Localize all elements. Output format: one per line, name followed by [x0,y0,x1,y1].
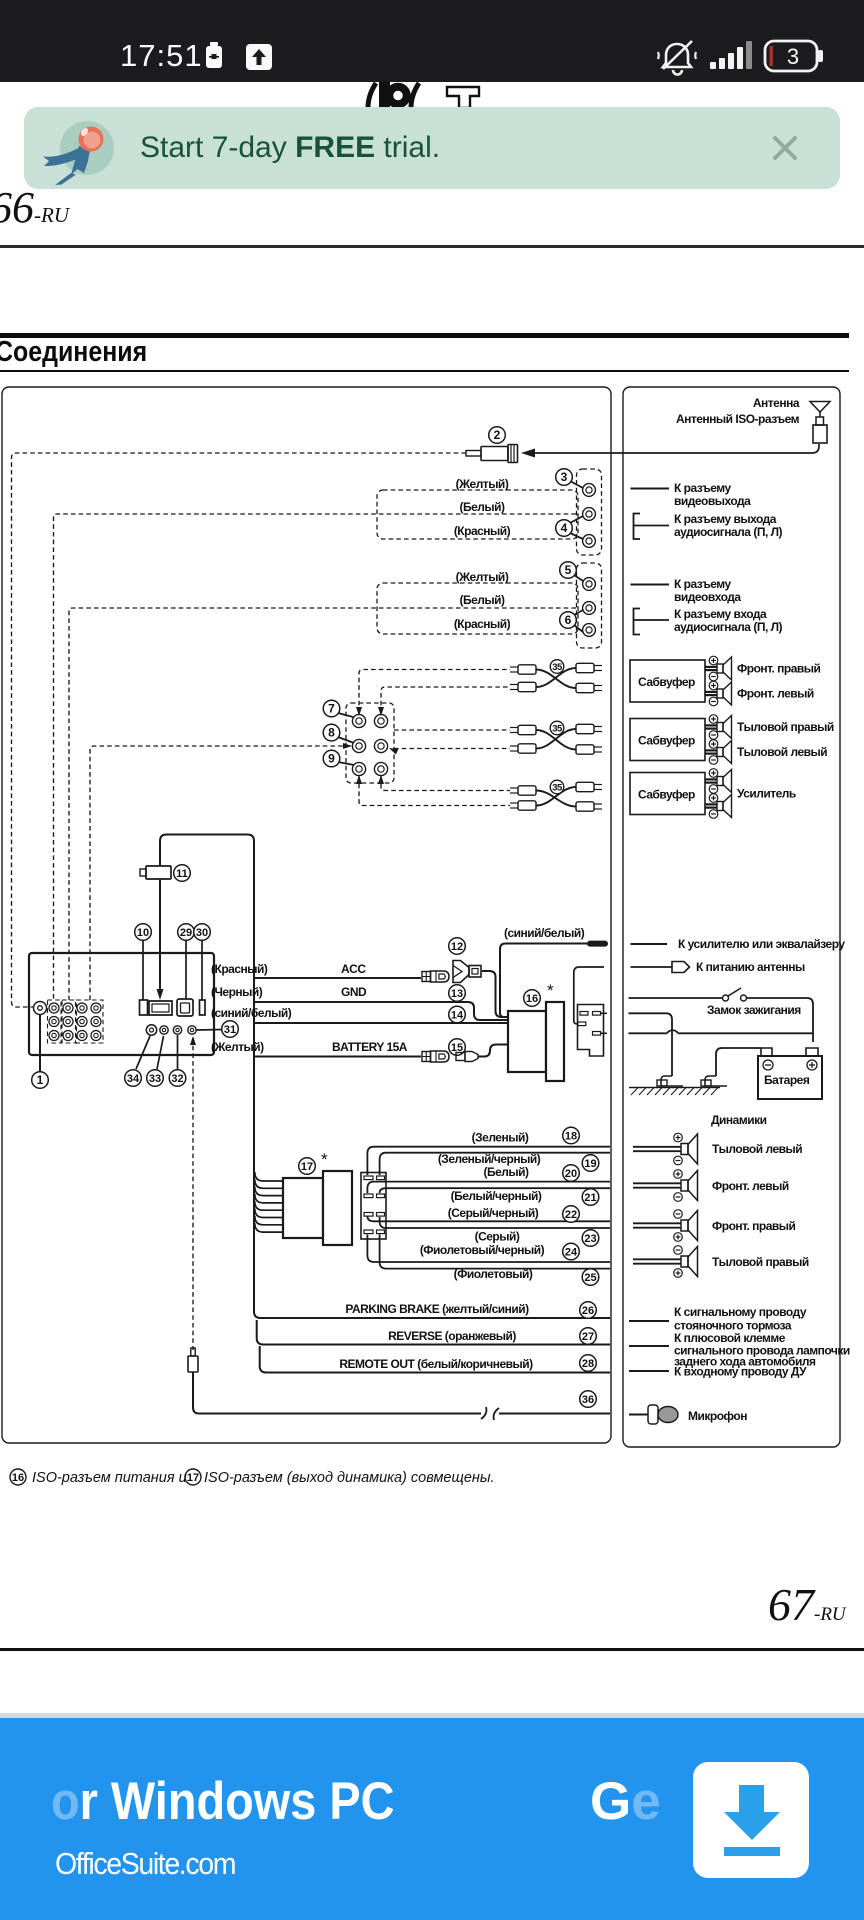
svg-text:6: 6 [565,613,572,627]
svg-text:17: 17 [187,1472,199,1484]
svg-text:13: 13 [451,988,463,1000]
svg-text:2: 2 [494,428,501,442]
svg-text:ACC: ACC [341,962,366,976]
svg-text:(Красный): (Красный) [454,524,511,538]
svg-text:К усилителю или эквалайзеру: К усилителю или эквалайзеру [678,937,845,951]
svg-text:аудиосигнала (П, Л): аудиосигнала (П, Л) [674,525,783,539]
svg-text:К разъему: К разъему [674,481,731,495]
svg-text:К питанию антенны: К питанию антенны [696,960,805,974]
svg-text:9: 9 [328,752,335,766]
svg-text:Тыловой правый: Тыловой правый [712,1255,809,1269]
svg-text:Динамики: Динамики [711,1113,767,1127]
svg-text:4: 4 [561,521,568,535]
svg-text:Сабвуфер: Сабвуфер [638,734,695,748]
svg-text:Усилитель: Усилитель [737,787,796,801]
svg-text:*: * [321,1150,328,1169]
svg-text:Микрофон: Микрофон [688,1409,747,1423]
svg-text:Фронт. левый: Фронт. левый [737,687,814,701]
svg-text:видеовыхода: видеовыхода [674,494,751,508]
svg-text:К сигнальному проводу: К сигнальному проводу [674,1305,807,1319]
svg-text:29: 29 [180,927,192,939]
svg-text:ISO-разъем (выход динамика) со: ISO-разъем (выход динамика) совмещены. [204,1470,495,1486]
svg-text:31: 31 [224,1024,236,1036]
svg-text:Батарея: Батарея [764,1073,810,1087]
svg-text:К разъему: К разъему [674,577,731,591]
svg-text:Антенный ISO-разъем: Антенный ISO-разъем [676,412,800,426]
svg-text:(синий/белый): (синий/белый) [504,926,585,940]
svg-text:16: 16 [526,993,538,1005]
svg-text:35: 35 [552,723,563,734]
svg-text:28: 28 [582,1358,594,1370]
svg-text:(Черный): (Черный) [211,985,263,999]
svg-text:8: 8 [328,726,335,740]
svg-text:(Белый): (Белый) [459,500,505,514]
svg-text:18: 18 [565,1131,577,1143]
svg-text:(Фиолетовый): (Фиолетовый) [454,1267,533,1281]
svg-text:(Серый): (Серый) [475,1230,520,1244]
svg-text:(Красный): (Красный) [454,617,511,631]
svg-text:23: 23 [584,1233,596,1245]
svg-text:Фронт. левый: Фронт. левый [712,1179,789,1193]
svg-text:(Белый/черный): (Белый/черный) [451,1189,542,1203]
svg-text:Фронт. правый: Фронт. правый [737,662,821,676]
svg-text:(Желтый): (Желтый) [211,1040,264,1054]
svg-text:7: 7 [328,702,335,716]
svg-text:35: 35 [552,662,563,673]
svg-text:(Серый/черный): (Серый/черный) [448,1206,539,1220]
svg-text:(Зеленый): (Зеленый) [472,1131,529,1145]
svg-text:REVERSE (оранжевый): REVERSE (оранжевый) [388,1329,516,1343]
svg-text:К разъему входа: К разъему входа [674,607,767,621]
svg-text:BATTERY 15A: BATTERY 15A [332,1040,408,1054]
svg-text:12: 12 [451,941,463,953]
svg-text:26: 26 [582,1305,594,1317]
svg-text:(Зеленый/черный): (Зеленый/черный) [438,1152,541,1166]
svg-text:20: 20 [565,1168,577,1180]
svg-text:33: 33 [149,1073,161,1085]
svg-text:К разъему выхода: К разъему выхода [674,512,777,526]
svg-text:32: 32 [171,1073,183,1085]
svg-text:(Белый): (Белый) [483,1165,529,1179]
svg-text:Тыловой правый: Тыловой правый [737,720,834,734]
svg-text:аудиосигнала (П, Л): аудиосигнала (П, Л) [674,620,783,634]
svg-text:видеовхода: видеовхода [674,590,741,604]
svg-text:1: 1 [37,1073,44,1087]
svg-text:(Фиолетовый/черный): (Фиолетовый/черный) [420,1243,545,1257]
svg-text:19: 19 [584,1158,596,1170]
svg-text:Замок зажигания: Замок зажигания [707,1003,801,1017]
svg-text:27: 27 [582,1331,594,1343]
svg-text:Фронт. правый: Фронт. правый [712,1219,796,1233]
svg-text:17: 17 [301,1161,313,1173]
svg-text:35: 35 [552,782,563,793]
svg-text:30: 30 [196,927,208,939]
svg-text:ISO-разъем питания и: ISO-разъем питания и [32,1470,187,1486]
svg-text:(Красный): (Красный) [211,962,268,976]
svg-text:Сабвуфер: Сабвуфер [638,788,695,802]
svg-text:REMOTE OUT (белый/коричневый): REMOTE OUT (белый/коричневый) [339,1357,533,1371]
svg-text:Тыловой левый: Тыловой левый [737,745,827,759]
svg-text:Сабвуфер: Сабвуфер [638,675,695,689]
svg-text:36: 36 [582,1394,594,1406]
svg-text:14: 14 [451,1010,464,1022]
svg-text:(синий/белый): (синий/белый) [211,1006,292,1020]
svg-text:GND: GND [341,985,367,999]
svg-text:(Желтый): (Желтый) [456,570,509,584]
svg-text:34: 34 [127,1073,140,1085]
svg-text:PARKING BRAKE (желтый/синий): PARKING BRAKE (желтый/синий) [345,1302,529,1316]
svg-text:16: 16 [12,1472,24,1484]
svg-text:(Желтый): (Желтый) [456,477,509,491]
svg-text:Тыловой левый: Тыловой левый [712,1142,802,1156]
svg-text:*: * [547,981,554,1000]
svg-text:21: 21 [584,1192,596,1204]
svg-text:24: 24 [565,1247,578,1259]
svg-text:11: 11 [176,868,188,880]
svg-text:10: 10 [137,927,149,939]
svg-text:22: 22 [565,1209,577,1221]
svg-text:(Белый): (Белый) [459,593,505,607]
svg-text:3: 3 [561,470,568,484]
svg-text:К входному проводу ДУ: К входному проводу ДУ [674,1365,807,1379]
svg-text:5: 5 [565,563,572,577]
svg-text:25: 25 [584,1272,596,1284]
svg-text:Антенна: Антенна [753,396,800,410]
